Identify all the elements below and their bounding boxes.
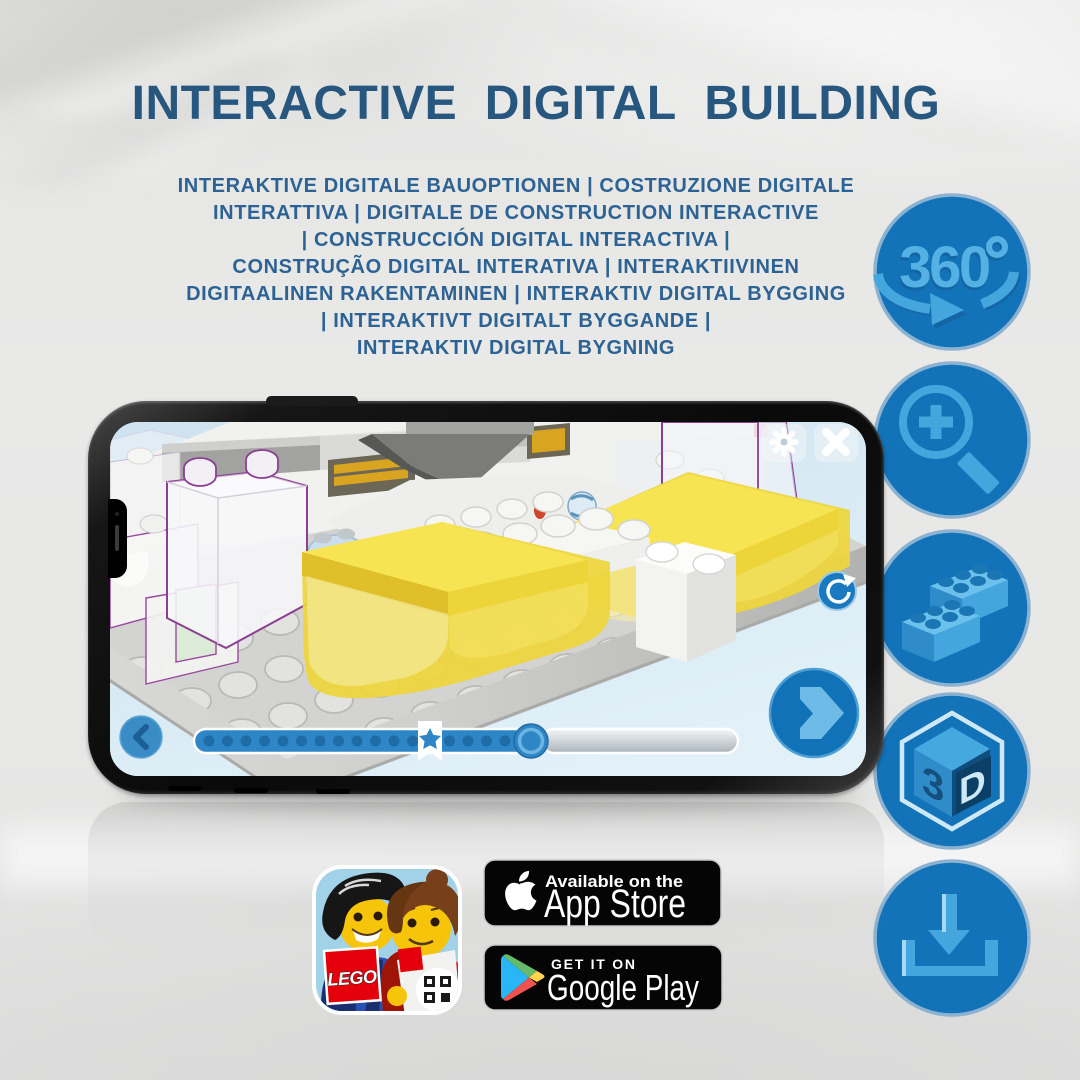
svg-text:LEGO: LEGO [327, 966, 378, 989]
svg-text:Google Play: Google Play [547, 967, 699, 1008]
svg-text:360: 360 [899, 235, 989, 300]
svg-text:App Store: App Store [544, 882, 686, 926]
